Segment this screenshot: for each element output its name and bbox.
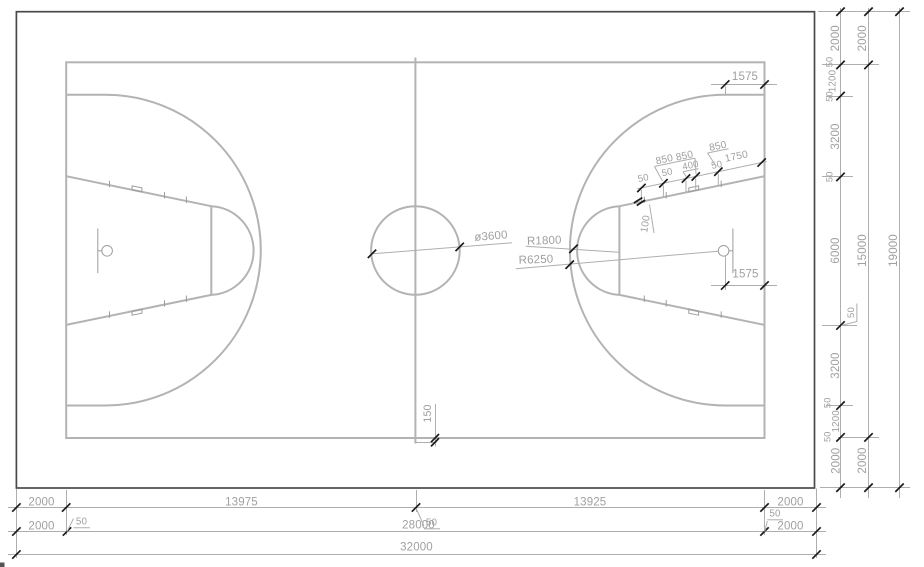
svg-text:15000: 15000 [857, 234, 869, 267]
svg-text:50: 50 [76, 517, 88, 528]
svg-text:100: 100 [639, 214, 653, 233]
svg-text:50: 50 [823, 431, 833, 442]
svg-text:13975: 13975 [225, 496, 258, 508]
svg-text:2000: 2000 [857, 25, 869, 51]
svg-text:R1800: R1800 [527, 235, 562, 248]
svg-text:50: 50 [825, 172, 835, 183]
svg-text:32000: 32000 [400, 541, 433, 553]
svg-text:19000: 19000 [888, 234, 900, 267]
svg-text:1200: 1200 [828, 69, 839, 92]
svg-text:2000: 2000 [831, 448, 843, 474]
svg-text:50: 50 [825, 91, 835, 102]
svg-text:3200: 3200 [830, 353, 842, 379]
svg-text:50: 50 [661, 166, 674, 179]
svg-text:50: 50 [769, 509, 781, 520]
svg-text:1750: 1750 [724, 149, 749, 165]
svg-text:2000: 2000 [777, 521, 803, 533]
svg-text:13925: 13925 [574, 496, 607, 508]
svg-text:2000: 2000 [28, 521, 54, 533]
svg-text:6000: 6000 [830, 237, 842, 263]
svg-text:R6250: R6250 [518, 254, 553, 267]
svg-text:50: 50 [846, 307, 857, 318]
svg-text:1575: 1575 [732, 269, 758, 281]
svg-text:150: 150 [422, 404, 434, 422]
svg-text:50: 50 [426, 518, 438, 529]
svg-text:2000: 2000 [857, 447, 869, 473]
svg-text:ø3600: ø3600 [474, 229, 508, 244]
svg-text:1575: 1575 [732, 71, 758, 83]
svg-text:50: 50 [823, 398, 833, 409]
svg-text:850: 850 [655, 153, 675, 167]
svg-text:400: 400 [681, 159, 699, 173]
svg-text:50: 50 [637, 172, 650, 185]
svg-text:50: 50 [825, 57, 835, 68]
svg-text:2000: 2000 [830, 25, 842, 51]
svg-text:2000: 2000 [28, 496, 54, 508]
svg-text:1200: 1200 [831, 410, 842, 433]
svg-text:2000: 2000 [777, 496, 803, 508]
svg-text:3200: 3200 [830, 123, 842, 149]
